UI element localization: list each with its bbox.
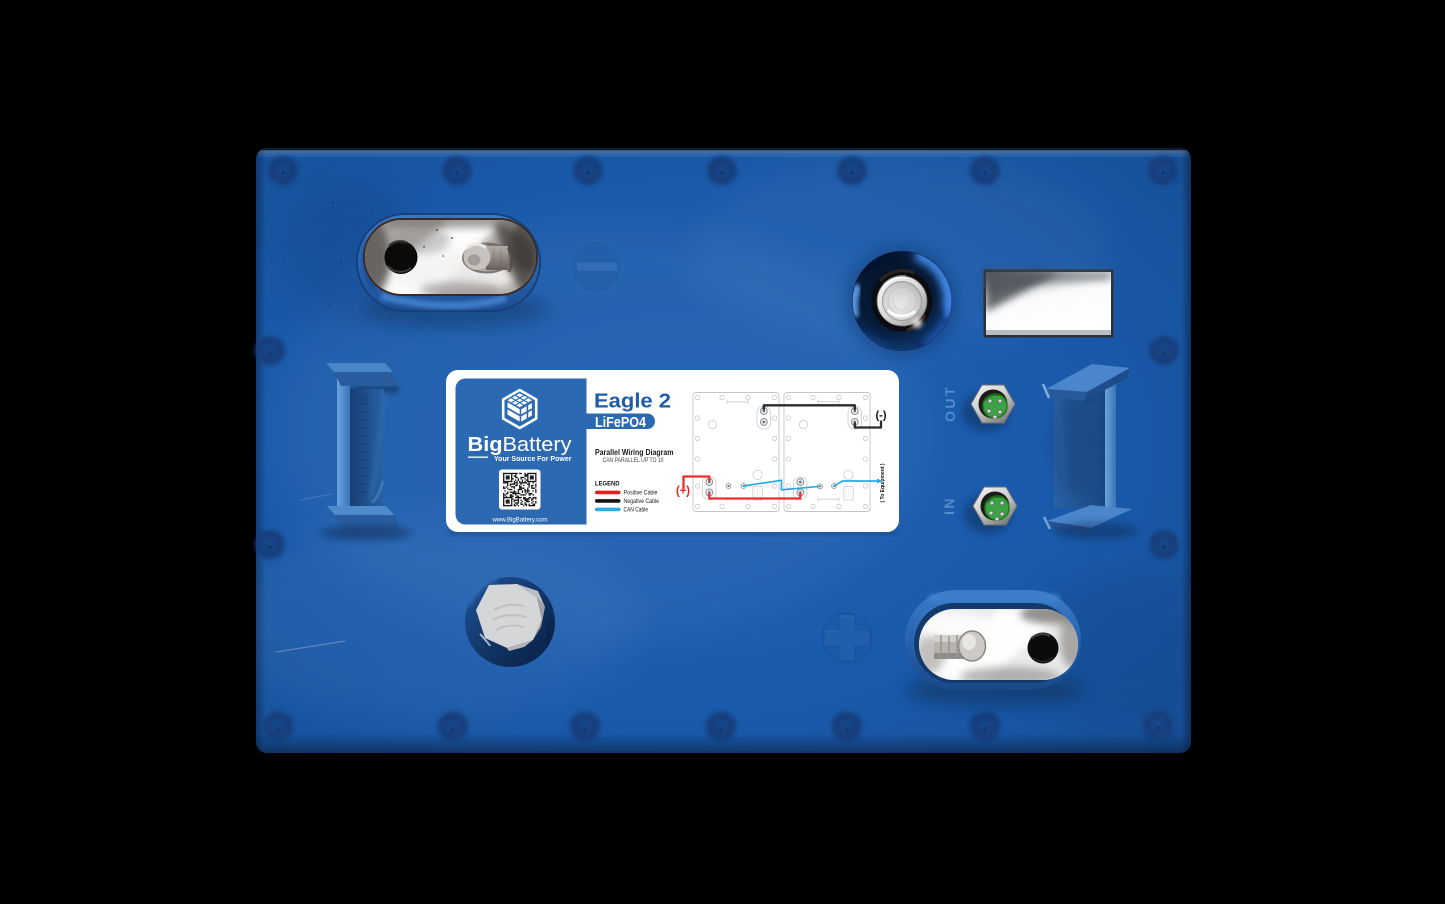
svg-text:BigBattery: BigBattery (468, 433, 573, 456)
svg-text:LEGEND: LEGEND (595, 481, 620, 488)
svg-text:OUT: OUT (942, 385, 958, 422)
svg-text:( To Equipment ): ( To Equipment ) (880, 463, 886, 502)
svg-text:CAN Cable: CAN Cable (624, 507, 649, 513)
svg-text:Positive Cable: Positive Cable (624, 490, 659, 496)
svg-text:(-): (-) (876, 410, 887, 422)
svg-text:Your Source For Power: Your Source For Power (494, 456, 572, 463)
svg-text:Negative Cable: Negative Cable (624, 499, 660, 505)
svg-text:LiFePO4: LiFePO4 (595, 415, 646, 431)
svg-text:Parallel Wiring Diagram: Parallel Wiring Diagram (595, 448, 674, 457)
svg-text:IN: IN (941, 496, 957, 515)
svg-text:www.BigBattery.com: www.BigBattery.com (492, 517, 548, 524)
svg-text:CAN PARALLEL UP TO 10: CAN PARALLEL UP TO 10 (603, 458, 665, 464)
svg-text:Eagle 2: Eagle 2 (594, 390, 671, 413)
